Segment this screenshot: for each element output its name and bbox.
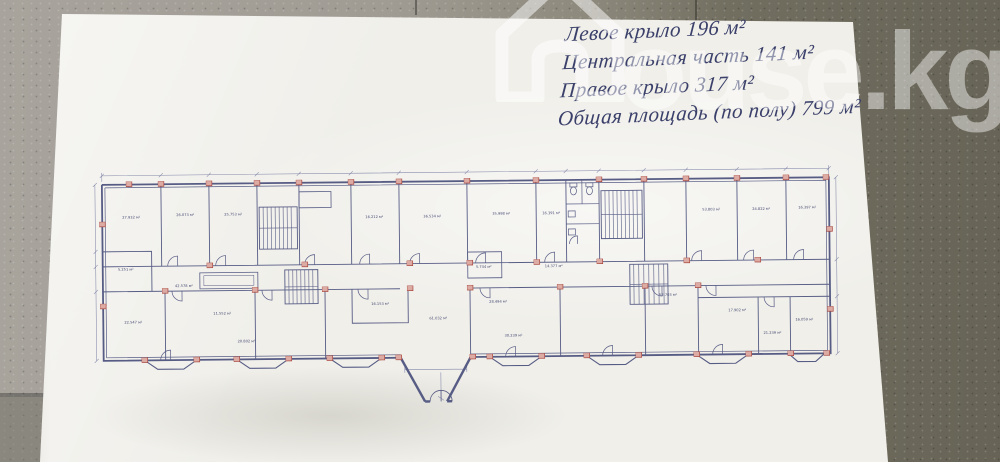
- handwritten-note: Левое крыло 196 м² Центральная часть 141…: [557, 7, 869, 132]
- room-label: 5.744 м²: [476, 265, 492, 269]
- room-label: 22.547 м²: [124, 320, 142, 324]
- room-label: 36.534 м²: [423, 214, 441, 218]
- entrance-vestibule: [401, 357, 471, 402]
- room-label: 52.703 м²: [659, 293, 677, 297]
- room-label: 16.397 м²: [798, 205, 816, 209]
- room-label: 20.802 м²: [238, 339, 256, 343]
- floor-plan: 27.932 м² 26.073 м² 25.753 м² 16.212 м² …: [91, 160, 854, 424]
- concrete-seam: [415, 0, 417, 15]
- entrance-canopy: [145, 353, 825, 369]
- room-label: 27.932 м²: [122, 215, 140, 219]
- room-label: 24.822 м²: [752, 207, 770, 211]
- room-label: 16.059 м²: [795, 317, 813, 321]
- room-label: 30.239 м²: [505, 333, 523, 337]
- room-label: 53.803 м²: [702, 207, 720, 211]
- room-label: 16.153 м²: [371, 302, 389, 306]
- room-label: 21.239 м²: [763, 331, 781, 335]
- door-arcs: [159, 234, 804, 361]
- room-label: 35.998 м²: [492, 212, 510, 216]
- wc-fixtures: [566, 180, 600, 235]
- room-label: 16.212 м²: [365, 215, 383, 219]
- dimension-lines: [93, 165, 840, 404]
- room-label: 28.494 м²: [489, 300, 507, 304]
- room-label: 16.391 м²: [542, 211, 560, 215]
- room-label: 5.251 м²: [118, 268, 134, 272]
- photo-background: { "background": { "concrete_left_color":…: [0, 0, 1000, 462]
- room-label: 61.032 м²: [429, 316, 447, 320]
- room-label: 11.552 м²: [213, 312, 231, 316]
- room-label: 26.073 м²: [176, 213, 194, 217]
- plan-walls: [102, 177, 831, 361]
- room-label: 25.753 м²: [224, 212, 242, 216]
- room-label: 42.578 м²: [175, 284, 193, 288]
- room-label: 14.377 м²: [545, 264, 563, 268]
- room-label: 17.902 м²: [728, 308, 746, 312]
